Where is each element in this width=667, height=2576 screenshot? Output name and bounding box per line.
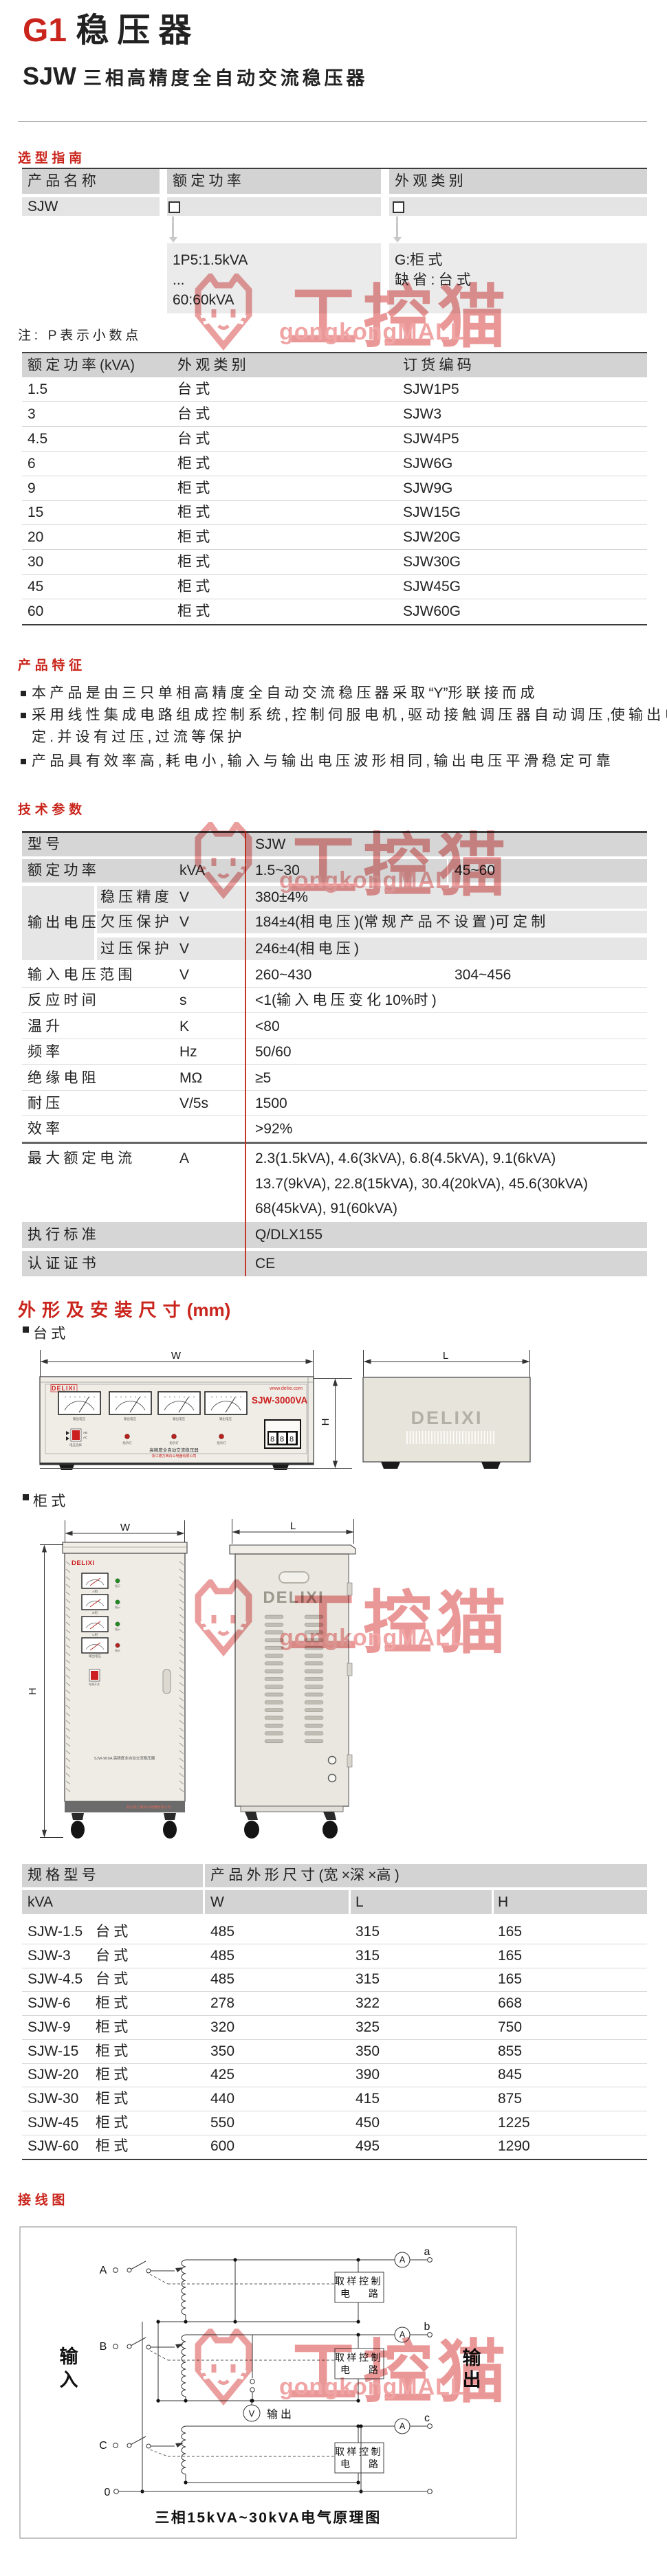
svg-text:高精度全自动交流稳压器: 高精度全自动交流稳压器 — [149, 1447, 199, 1453]
svg-text:AC: AC — [83, 1436, 88, 1439]
svg-text:输: 输 — [463, 2347, 482, 2368]
svg-text:B相: B相 — [92, 1610, 98, 1615]
svg-text:输出电压: 输出电压 — [89, 1654, 101, 1658]
svg-text:A相: A相 — [92, 1589, 98, 1594]
svg-text:指示灯: 指示灯 — [169, 1441, 179, 1445]
svg-text:C相: C相 — [92, 1632, 98, 1637]
svg-text:DELIXI: DELIXI — [72, 1559, 95, 1567]
svg-text:浙江德力西舟山电器有限公司: 浙江德力西舟山电器有限公司 — [151, 1454, 196, 1458]
svg-text:路: 路 — [369, 2458, 378, 2469]
svg-text:SJW-9K9A 高精度全自动交流稳压器: SJW-9K9A 高精度全自动交流稳压器 — [94, 1755, 155, 1761]
svg-text:指示: 指示 — [115, 1605, 120, 1609]
svg-text:W: W — [120, 1522, 131, 1533]
svg-text:指示: 指示 — [115, 1627, 120, 1631]
svg-text:A: A — [400, 2255, 406, 2265]
svg-text:SJW-3000VA: SJW-3000VA — [252, 1395, 308, 1406]
svg-text:DELIXI: DELIXI — [263, 1588, 324, 1607]
svg-text:指示: 指示 — [115, 1648, 120, 1652]
svg-text:H: H — [320, 1419, 331, 1426]
svg-text:W: W — [171, 1350, 182, 1362]
svg-text:路: 路 — [369, 2364, 378, 2375]
svg-text:AB: AB — [83, 1431, 87, 1434]
svg-text:输出: 输出 — [267, 2408, 294, 2421]
svg-text:DELIXI: DELIXI — [52, 1385, 76, 1392]
svg-text:电: 电 — [340, 2364, 350, 2375]
svg-text:a: a — [424, 2246, 430, 2258]
svg-text:输出电压: 输出电压 — [219, 1417, 232, 1421]
svg-text:输: 输 — [60, 2346, 79, 2367]
svg-text:A: A — [100, 2265, 107, 2276]
svg-text:V: V — [249, 2408, 255, 2419]
svg-text:电压选择: 电压选择 — [69, 1443, 82, 1447]
svg-text:L: L — [290, 1520, 296, 1532]
svg-text:出: 出 — [463, 2370, 481, 2390]
svg-text:入: 入 — [60, 2370, 78, 2390]
svg-text:浙江德力西舟山电器有限公司: 浙江德力西舟山电器有限公司 — [126, 1805, 171, 1810]
svg-text:L: L — [443, 1350, 448, 1362]
svg-text:8: 8 — [270, 1436, 274, 1444]
svg-text:B: B — [100, 2341, 107, 2353]
svg-text:H: H — [27, 1688, 39, 1696]
svg-text:0: 0 — [105, 2487, 111, 2498]
svg-text:取样控制: 取样控制 — [335, 2446, 383, 2457]
svg-text:电源开关: 电源开关 — [89, 1682, 100, 1686]
svg-text:路: 路 — [369, 2288, 378, 2299]
svg-text:取样控制: 取样控制 — [335, 2352, 383, 2363]
svg-text:A: A — [400, 2421, 406, 2431]
svg-text:b: b — [424, 2321, 430, 2333]
svg-text:A: A — [400, 2330, 406, 2340]
svg-text:8: 8 — [289, 1436, 294, 1444]
svg-text:指示灯: 指示灯 — [122, 1441, 132, 1445]
svg-text:输出电压: 输出电压 — [73, 1417, 85, 1421]
svg-text:8: 8 — [280, 1436, 284, 1444]
svg-text:电: 电 — [340, 2288, 350, 2299]
svg-text:指示: 指示 — [115, 1584, 120, 1588]
svg-text:c: c — [424, 2412, 430, 2424]
svg-text:输出电压: 输出电压 — [124, 1417, 136, 1421]
svg-text:三相15kVA~30kVA电气原理图: 三相15kVA~30kVA电气原理图 — [155, 2509, 382, 2526]
svg-text:指示灯: 指示灯 — [217, 1441, 226, 1445]
svg-text:C: C — [99, 2440, 107, 2452]
svg-text:www.delixi.com: www.delixi.com — [269, 1386, 303, 1391]
svg-text:DELIXI: DELIXI — [411, 1408, 483, 1428]
svg-text:输出电压: 输出电压 — [173, 1417, 185, 1421]
svg-text:取样控制: 取样控制 — [335, 2276, 383, 2287]
svg-text:电: 电 — [340, 2458, 350, 2469]
